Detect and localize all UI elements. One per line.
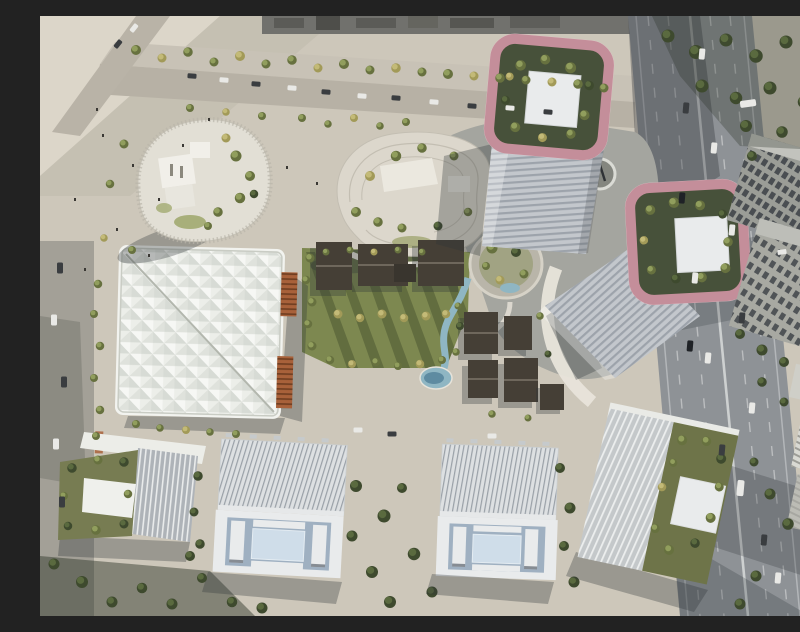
tree (94, 456, 103, 465)
car (692, 272, 699, 283)
car (505, 105, 514, 111)
tree (76, 576, 88, 588)
car (739, 312, 746, 323)
car (699, 48, 706, 59)
car (354, 428, 363, 433)
car (467, 103, 476, 109)
tree (555, 463, 565, 473)
tree (222, 108, 230, 116)
tree (782, 518, 794, 530)
tree (131, 45, 141, 55)
person (96, 108, 98, 111)
car (251, 81, 260, 87)
car (53, 439, 59, 450)
tree (185, 551, 195, 561)
roof-lawn (174, 215, 206, 229)
tree (394, 362, 402, 370)
tree (90, 374, 98, 382)
slab-west-ribbed-facade (218, 439, 347, 515)
tree (443, 69, 453, 79)
tree (740, 120, 752, 132)
van (736, 480, 744, 497)
slab-west-court-center (251, 529, 304, 562)
tree (525, 415, 532, 422)
tree (600, 84, 609, 93)
tree (182, 426, 190, 434)
tree (747, 151, 757, 161)
tree (376, 122, 384, 130)
garden-pool (500, 283, 520, 293)
tree (347, 531, 358, 542)
tree (287, 55, 297, 65)
tree (416, 360, 425, 369)
rooftop-structure (158, 154, 196, 188)
car (488, 434, 497, 439)
tree (400, 314, 409, 323)
tree (418, 68, 427, 77)
tree (227, 597, 238, 608)
car (321, 89, 330, 95)
person (132, 164, 134, 167)
tree (391, 151, 402, 162)
tree (190, 508, 199, 517)
car (687, 340, 694, 351)
tree (662, 30, 675, 43)
car (711, 142, 718, 153)
person (208, 118, 210, 121)
tree (231, 151, 242, 162)
tree (495, 73, 505, 83)
tree (298, 114, 306, 122)
car (679, 192, 686, 203)
tree (193, 471, 203, 481)
tree (757, 377, 767, 387)
courtyard-slab-east (436, 438, 561, 580)
car (543, 109, 552, 115)
car (219, 77, 228, 83)
tree (384, 596, 396, 608)
tree (398, 224, 407, 233)
person (316, 182, 318, 185)
tree (455, 303, 462, 310)
tree (402, 118, 410, 126)
tree (124, 490, 133, 499)
tree (107, 597, 118, 608)
car (51, 315, 57, 326)
tree (323, 249, 330, 256)
tree (559, 541, 569, 551)
tree (565, 503, 576, 514)
tree (262, 60, 271, 69)
tree (351, 207, 361, 217)
tree (780, 398, 789, 407)
person (102, 134, 104, 137)
tree (92, 432, 100, 440)
tree (378, 510, 391, 523)
tree (366, 566, 378, 578)
copper-louvers (276, 356, 293, 408)
tree (304, 320, 313, 329)
tree (334, 310, 343, 319)
tree (356, 314, 365, 323)
tree (395, 247, 402, 254)
tree (96, 406, 105, 415)
tree (366, 66, 375, 75)
tree (120, 520, 129, 529)
tree (308, 298, 317, 307)
tree (119, 457, 129, 467)
tree (324, 120, 332, 128)
tree (488, 410, 496, 418)
car (705, 352, 712, 363)
tree (391, 63, 401, 73)
tree (419, 249, 426, 256)
tree (258, 112, 266, 120)
person (182, 144, 184, 147)
tree (235, 193, 246, 204)
tree (348, 360, 356, 368)
tree (776, 126, 788, 138)
tree (496, 276, 505, 285)
car (59, 497, 65, 508)
tree (408, 548, 421, 561)
tree (158, 54, 167, 63)
tree (749, 49, 763, 63)
aerial-rendering: Bird's-eye rendering of a mixed-use deve… (40, 16, 800, 616)
tree (306, 254, 315, 263)
tree (422, 312, 431, 321)
tree (132, 420, 140, 428)
tower-east-skylight (675, 216, 730, 273)
tree (373, 217, 383, 227)
tree (442, 310, 451, 319)
tree (235, 51, 245, 61)
car (187, 73, 196, 79)
car (391, 95, 400, 101)
tree (326, 356, 335, 365)
tree (536, 312, 544, 320)
tree (232, 430, 240, 438)
tree (197, 573, 207, 583)
car (719, 444, 726, 455)
southwest-ribbed-roof (132, 448, 198, 542)
tree (779, 357, 789, 367)
car (749, 402, 756, 413)
tree (548, 78, 557, 87)
car (429, 99, 438, 105)
tree (365, 171, 375, 181)
tree (67, 463, 77, 473)
tree (137, 583, 148, 594)
tree (765, 489, 776, 500)
person (74, 198, 76, 201)
copper-louvers (280, 272, 297, 316)
tree (49, 559, 60, 570)
tree (120, 140, 129, 149)
tree (545, 351, 552, 358)
person (286, 166, 288, 169)
tree (522, 76, 531, 85)
tree (456, 322, 464, 330)
tree (100, 234, 108, 242)
tree (520, 270, 529, 279)
tree (90, 310, 98, 318)
car (761, 534, 768, 545)
slab-east-ribbed-facade (440, 444, 558, 520)
tree (438, 356, 446, 364)
tree (195, 539, 205, 549)
village-house (504, 316, 532, 350)
tree (378, 310, 387, 319)
car (683, 102, 690, 113)
tree (780, 36, 793, 49)
tree (106, 180, 115, 189)
tree (757, 345, 768, 356)
courtyard-slab-west (213, 433, 348, 579)
tree (167, 599, 178, 610)
tree (347, 247, 354, 254)
tree (204, 222, 212, 230)
tree (156, 424, 164, 432)
tree (696, 80, 709, 93)
tree (128, 246, 136, 254)
tree (64, 522, 73, 531)
car (57, 263, 63, 274)
tree (206, 428, 214, 436)
tree (96, 342, 105, 351)
person (158, 198, 160, 201)
car (775, 572, 782, 583)
tree (751, 571, 762, 582)
tree (764, 82, 777, 95)
tree (720, 34, 733, 47)
tree (250, 190, 259, 199)
person (116, 228, 118, 231)
tree (735, 599, 746, 610)
tree (94, 280, 103, 289)
crystal-hall (95, 244, 308, 458)
person (148, 254, 150, 257)
tree (482, 262, 490, 270)
tree (245, 171, 255, 181)
tree (339, 59, 349, 69)
tree (371, 249, 378, 256)
tree (257, 603, 268, 614)
tree (397, 483, 407, 493)
car (388, 432, 397, 437)
tree (183, 47, 193, 57)
car (287, 85, 296, 91)
tree (372, 358, 381, 367)
tree (750, 458, 759, 467)
tree (222, 134, 231, 143)
tree (213, 207, 223, 217)
tree (417, 143, 427, 153)
rendering-canvas (40, 16, 800, 616)
car (357, 93, 366, 99)
tree (314, 64, 323, 73)
tree (735, 329, 745, 339)
tree (91, 525, 101, 535)
tree (470, 72, 479, 81)
tree (186, 104, 194, 112)
tree (210, 58, 219, 67)
tree (308, 342, 317, 351)
village-house (540, 384, 564, 410)
car (61, 377, 67, 388)
tree (573, 79, 583, 89)
slab-east-court-center (472, 534, 521, 564)
tree (350, 480, 362, 492)
tree (452, 348, 460, 356)
tree (302, 276, 311, 285)
car (729, 224, 736, 235)
tree (350, 114, 358, 122)
person (84, 268, 86, 271)
